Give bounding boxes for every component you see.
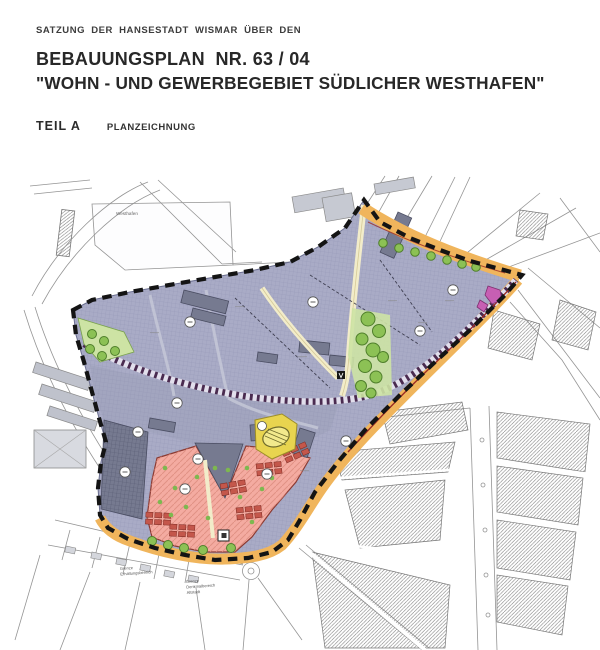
document-pretitle: SATZUNG DER HANSESTADT WISMAR ÜBER DEN <box>36 25 301 36</box>
part-label: TEIL A <box>36 119 81 133</box>
part-row: TEIL A PLANZEICHNUNG <box>36 119 196 133</box>
svg-text:Denkmalbereich: Denkmalbereich <box>186 582 215 589</box>
svg-text:Altstadt: Altstadt <box>186 589 201 595</box>
scanned-plan-page: { "document": { "pretitle": "SATZUNG DER… <box>0 0 600 650</box>
plan-name-title: "WOHN - UND GEWERBEGEBIET SÜDLICHER WEST… <box>36 73 545 94</box>
map-label-monument-boundary: Grenze Denkmalbereich Altstadt <box>186 577 216 595</box>
plan-number-title: BEBAUUNGSPLAN NR. 63 / 04 <box>36 49 310 70</box>
plan-drawing-map: Westhafen Grenze Erhaltungsbereich Grenz… <box>0 170 600 650</box>
part-title: PLANZEICHNUNG <box>107 122 196 133</box>
svg-text:Erhaltungsbereich: Erhaltungsbereich <box>120 569 153 576</box>
map-label-westhafen: Westhafen <box>116 211 138 216</box>
